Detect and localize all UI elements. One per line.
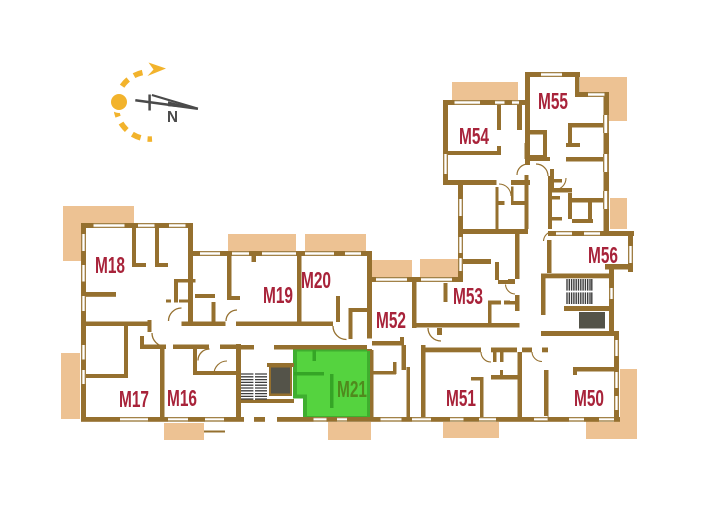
svg-text:M16: M16 <box>167 385 197 411</box>
svg-text:M17: M17 <box>119 386 149 412</box>
svg-text:M21: M21 <box>337 376 367 402</box>
svg-text:M52: M52 <box>376 307 406 333</box>
svg-text:M50: M50 <box>574 385 604 411</box>
svg-text:M51: M51 <box>446 385 476 411</box>
svg-text:M56: M56 <box>588 242 618 268</box>
svg-text:N: N <box>167 109 178 126</box>
svg-text:M19: M19 <box>263 282 293 308</box>
svg-text:M18: M18 <box>95 252 125 278</box>
svg-text:M55: M55 <box>538 88 568 114</box>
svg-text:M53: M53 <box>453 283 483 309</box>
svg-text:M20: M20 <box>301 267 331 293</box>
svg-text:M54: M54 <box>459 123 489 149</box>
